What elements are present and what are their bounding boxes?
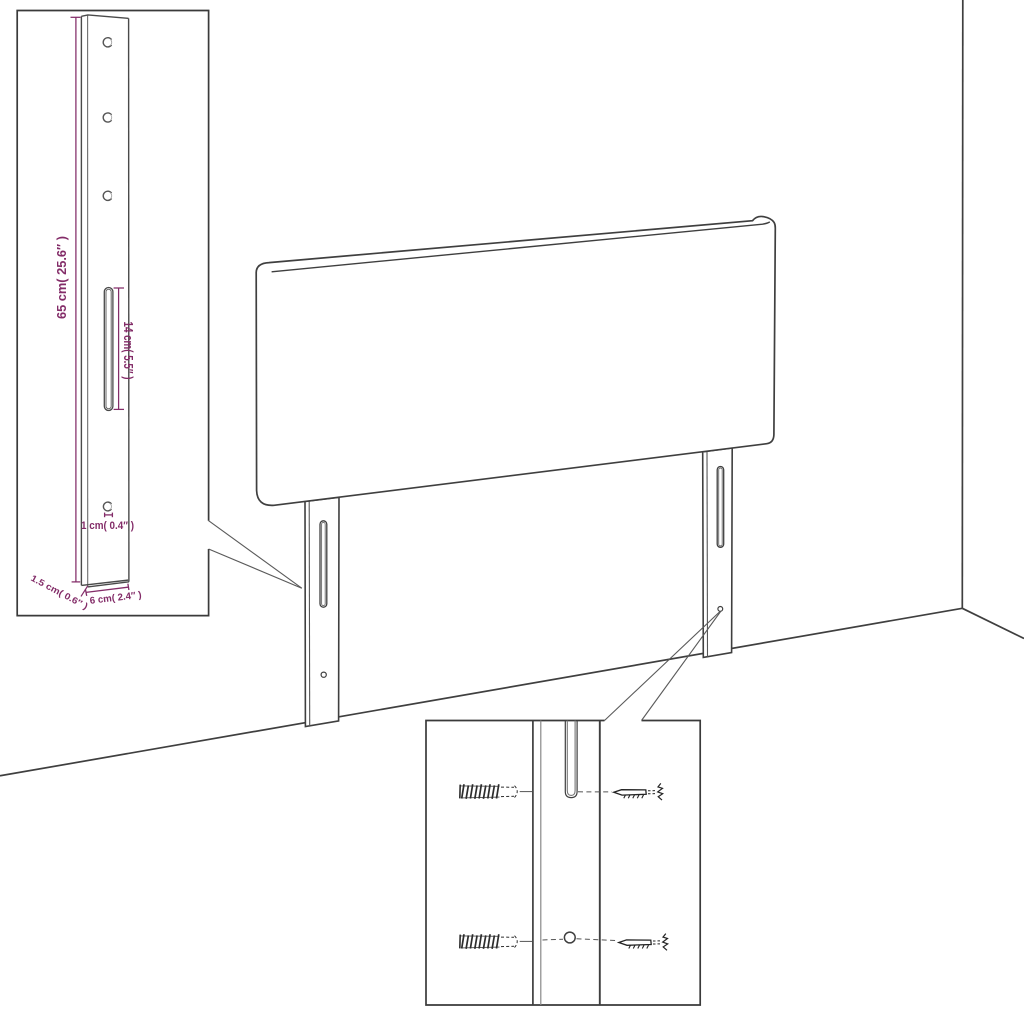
svg-text:14 cm( 5.5″ ): 14 cm( 5.5″ )	[121, 322, 135, 380]
svg-text:65 cm( 25.6″ ): 65 cm( 25.6″ )	[54, 236, 69, 319]
svg-text:1 cm( 0.4″ ): 1 cm( 0.4″ )	[81, 520, 134, 532]
svg-text:6 cm( 2.4″ ): 6 cm( 2.4″ )	[89, 590, 142, 607]
svg-text:1.5 cm( 0.6″ ): 1.5 cm( 0.6″ )	[29, 573, 89, 611]
